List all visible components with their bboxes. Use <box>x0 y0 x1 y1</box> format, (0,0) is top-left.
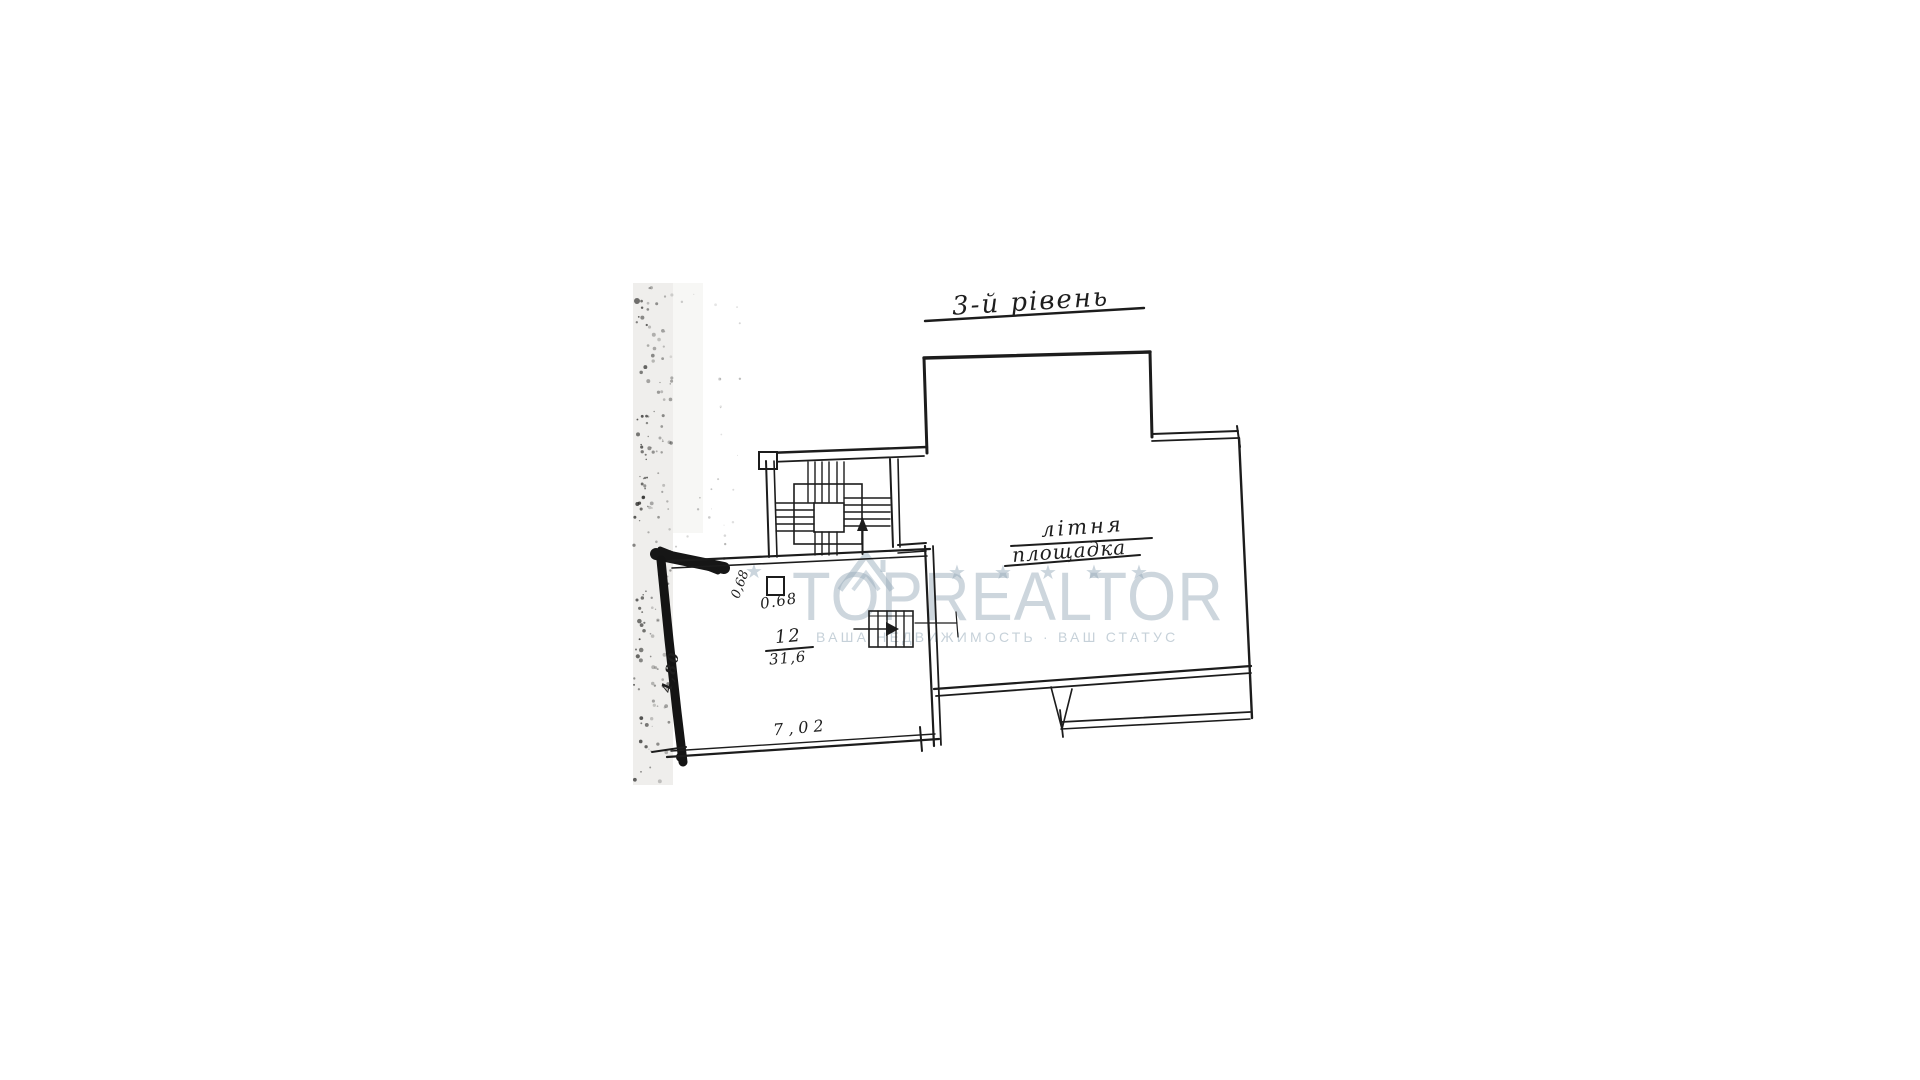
lower-stairs <box>854 611 958 647</box>
scanned-floor-plan-page: ★ ★ ★ ★ ★ ★ TOPREALTOR ВАША НЕДВИЖИМОСТЬ… <box>0 0 1920 1080</box>
room-area: 31,6 <box>768 647 807 668</box>
lower-terrace-edge <box>1051 687 1250 737</box>
staircase <box>759 447 927 557</box>
floor-plan-drawing <box>0 0 1920 1080</box>
room-number: 12 <box>774 625 803 648</box>
lower-stairs-arrow <box>886 622 899 636</box>
